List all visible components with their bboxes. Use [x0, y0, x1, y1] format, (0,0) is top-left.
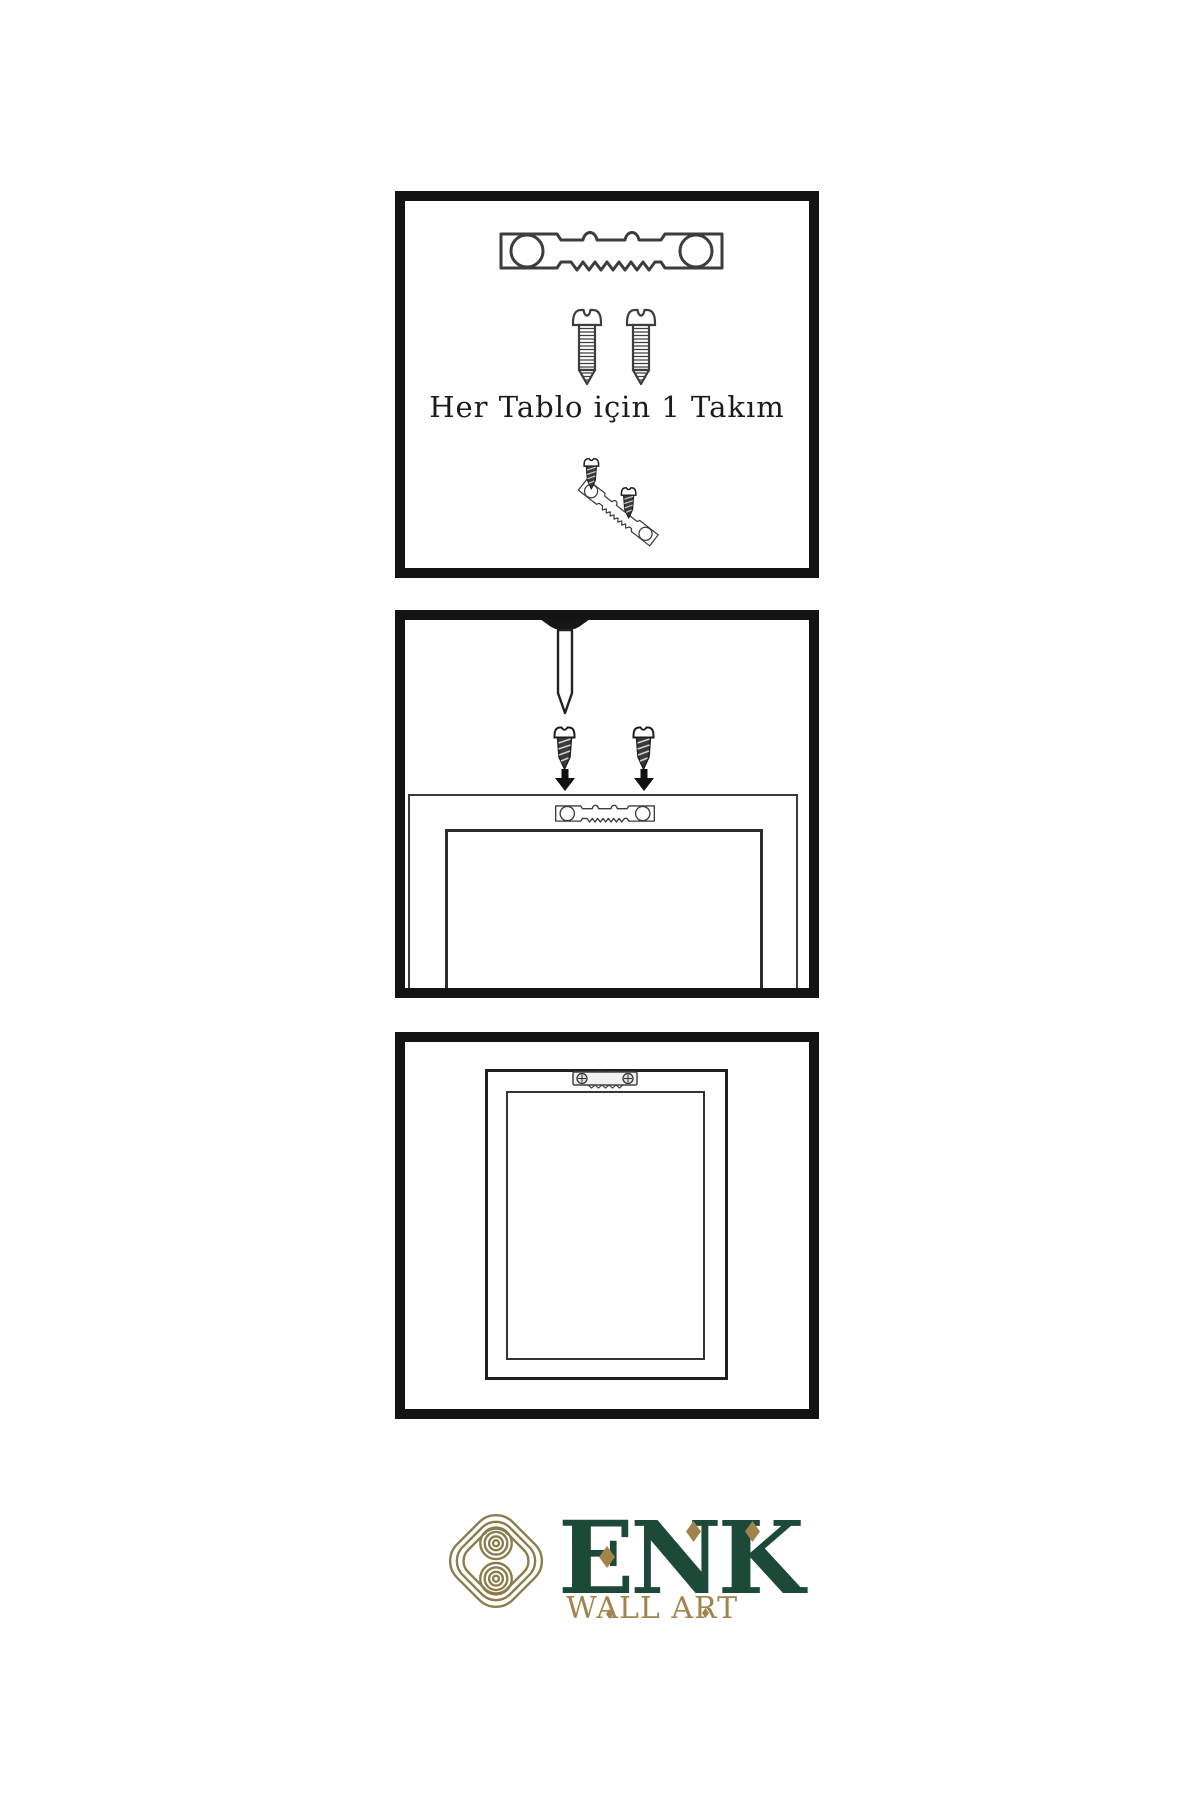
wall-nail-icon [540, 619, 590, 717]
hanger-screw-assembly-icon [573, 449, 673, 549]
knot-emblem-icon [437, 1502, 555, 1620]
dark-screw-icon [553, 724, 576, 771]
hanging-instruction-sheet: Her Tablo için 1 Takım [0, 0, 1200, 1800]
frame-back [408, 794, 798, 988]
hanging-frame-inner [506, 1091, 705, 1360]
screw-icon [624, 306, 658, 386]
dark-screw-icon [632, 724, 655, 771]
down-arrow-icon [634, 769, 654, 791]
sawtooth-hanger-icon [553, 801, 657, 827]
caption: Her Tablo için 1 Takım [405, 393, 809, 422]
brand-tagline: WALL ART [566, 1594, 738, 1624]
screw-icon [570, 306, 604, 386]
mounted-hanger-icon [572, 1071, 638, 1089]
frame-back-inner [445, 829, 763, 988]
sawtooth-hanger-icon [495, 224, 728, 280]
down-arrow-icon [555, 769, 575, 791]
step-panel-2 [395, 610, 819, 998]
step-panel-1: Her Tablo için 1 Takım [395, 191, 819, 578]
hanging-frame [485, 1069, 728, 1380]
step-panel-3 [395, 1032, 819, 1419]
